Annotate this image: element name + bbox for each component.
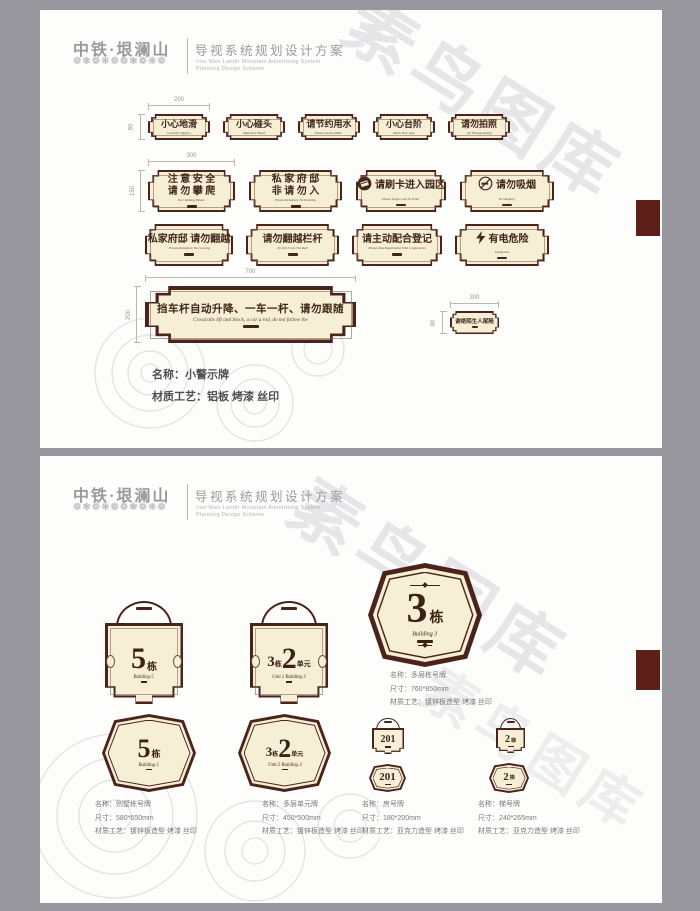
villa-building-sign-hex: 5栋 Building 5 xyxy=(102,714,196,792)
sign-content: 挡车杆自动升降、一车一杆、请勿跟随 Crossrails lift and bl… xyxy=(148,289,353,340)
sign-subtext: No Smoking xyxy=(499,198,515,201)
warning-sign: 请勿吸烟No Smoking xyxy=(460,170,554,212)
spec-craft: 材质工艺：镀锌板造型 烤漆 丝印 xyxy=(262,825,364,839)
sign-script: Building 5 xyxy=(139,762,159,767)
stair-number: 2 xyxy=(505,734,510,745)
sign-subtext: Carefully Slippery xyxy=(167,132,191,135)
sign-text: 有电危险 xyxy=(489,234,529,245)
sign-subtext: Mind Your Head xyxy=(243,132,265,135)
spec-craft: 材质工艺：镀锌板造型 烤漆 丝印 xyxy=(95,825,197,839)
number: 3 xyxy=(407,588,428,630)
warning-sign: 小心地滑Carefully Slippery xyxy=(148,114,210,140)
stair-number-sign-arch: 2梯 xyxy=(496,718,525,753)
spec-name: 名称：梯号牌 xyxy=(478,798,580,812)
sign-ornament xyxy=(243,325,259,328)
spec-size: 尺寸：450*500mm xyxy=(262,812,364,826)
spec-name: 名称：别墅栋号牌 xyxy=(95,798,197,812)
page-building-signs: 素鸟图库 素鸟图库 中铁·垠澜山 ❁❃❁❋❁❁❃❁❋❁ 导视系统规划设计方案 I… xyxy=(40,456,662,903)
stair-suffix: 梯 xyxy=(511,737,516,744)
number-suffix: 单元 xyxy=(297,659,311,669)
sign-text: 小心台阶 xyxy=(386,117,422,130)
sign-content: 注 意 安 全请 勿 攀 爬No Climbing Please xyxy=(151,173,232,209)
sign-subtext: Private Residence No Entering xyxy=(275,199,316,202)
sign-ornament xyxy=(392,253,402,256)
stair-number: 2 xyxy=(503,771,509,783)
card-icon xyxy=(357,176,372,196)
sign-content: 小心地滑Carefully Slippery xyxy=(151,117,207,137)
sign-text: 请刷卡进入园区 xyxy=(375,180,445,191)
warning-sign: 小心碰头Mind Your Head xyxy=(223,114,285,140)
spec-size: 尺寸：580*650mm xyxy=(95,812,197,826)
sign-content: 谢绝陌生人尾随 xyxy=(453,314,496,331)
spec-block-stair: 名称：梯号牌 尺寸：240*265mm 材质工艺：亚克力造型 烤漆 丝印 xyxy=(478,798,580,839)
sign-subtext: Dangerous xyxy=(495,251,510,254)
warning-sign: 私 家 府 邸非 请 勿 入Private Residence No Enter… xyxy=(249,170,342,212)
dimension-height: 200 xyxy=(136,286,137,343)
warning-sign-row-2: 注 意 安 全请 勿 攀 爬No Climbing Please私 家 府 邸非… xyxy=(148,170,554,212)
spec-block-villa: 名称：别墅栋号牌 尺寸：580*650mm 材质工艺：镀锌板造型 烤漆 丝印 xyxy=(95,798,197,839)
sign-script: Unit 2 Building 3 xyxy=(268,762,301,767)
sign-ornament xyxy=(141,681,147,683)
number: 2 xyxy=(278,736,291,762)
warning-sign: 请勿翻越栏杆Do Not Cross The Rail xyxy=(246,224,339,266)
sign-content: 私家府邸 请勿翻越Private Residence No Crossing xyxy=(148,227,230,263)
building-prefix-suffix: 栋 xyxy=(275,659,282,669)
spec-block-unit: 名称：多层单元牌 尺寸：450*500mm 材质工艺：镀锌板造型 烤漆 丝印 xyxy=(262,798,364,839)
sign-text-line: 注 意 安 全 xyxy=(168,174,216,185)
warning-sign-row-1: 小心地滑Carefully Slippery小心碰头Mind Your Head… xyxy=(148,114,510,140)
sign-content: 请刷卡进入园区Please Swipe Card To Enter xyxy=(359,173,443,209)
sign-text: 私 家 府 邸 xyxy=(272,174,320,185)
sign-text-line: 小心碰头 xyxy=(236,117,272,130)
document-subtitle-en: Iron Weir Landir Mountain Advertising Sy… xyxy=(196,505,321,519)
sign-ornament xyxy=(286,681,292,683)
dimension-height: 80 xyxy=(140,114,141,140)
crown-ornament xyxy=(281,607,297,610)
spec-craft: 材质工艺：铝板 烤漆 丝印 xyxy=(152,386,279,408)
sign-ornament xyxy=(396,204,406,207)
sign-subtext: Private Residence No Crossing xyxy=(168,247,209,250)
sign-body: 5栋 Building 5 xyxy=(105,623,183,704)
scanned-design-document: { "watermark_text": "素鸟图库", "header": { … xyxy=(0,0,700,911)
flourish-icon xyxy=(410,585,440,586)
document-title: 导视系统规划设计方案 xyxy=(195,40,345,59)
room-number: 201 xyxy=(381,734,396,745)
warning-sign: 有电危险Dangerous xyxy=(455,224,549,266)
building-sign-multi-storey: 3 栋 Building 3 xyxy=(368,563,482,667)
stair-suffix: 梯 xyxy=(510,774,515,781)
spec-block-small-warning: 名称：小警示牌 材质工艺：铝板 烤漆 丝印 xyxy=(152,364,279,408)
sign-subtext: Crossrails lift and block, a car a rod, … xyxy=(193,318,308,323)
sign-script: Building 3 xyxy=(413,630,438,637)
sign-content: 3 栋 2 单元 Unit 2 Building 3 xyxy=(238,714,331,792)
sign-text-line: 请 勿 攀 爬 xyxy=(168,186,216,197)
sign-text-line: 请勿拍照 xyxy=(461,117,497,130)
sign-ornament xyxy=(472,326,478,328)
no-tailgating-sign: 谢绝陌生人尾随 xyxy=(450,311,499,334)
document-subtitle-line2: Planning Design Scheme xyxy=(196,66,321,73)
sign-content: 请勿拍照No Photographing xyxy=(451,117,507,137)
sign-text: 非 请 勿 入 xyxy=(272,186,320,197)
document-subtitle-en: Iron Weir Landir Mountain Advertising Sy… xyxy=(196,59,321,73)
dimension-width: 700 xyxy=(145,277,356,278)
dimension-width: 200 xyxy=(148,105,210,106)
sign-ornament xyxy=(291,205,301,208)
room-number-sign-hex: 201 xyxy=(369,764,406,792)
sign-text: 请 勿 攀 爬 xyxy=(168,186,216,197)
sign-text-line: 有电危险 xyxy=(476,231,529,249)
warning-sign: 小心台阶Watch Your Step xyxy=(373,114,435,140)
sign-text-line: 小心台阶 xyxy=(386,117,422,130)
dimension-height: 80 xyxy=(442,311,443,334)
sign-subtext: No Climbing Please xyxy=(178,199,205,202)
villa-building-sign-arch: 5栋 Building 5 xyxy=(105,601,183,704)
building-number: 3 栋 xyxy=(407,588,444,630)
spec-name: 名称：小警示牌 xyxy=(152,364,279,386)
header-divider xyxy=(187,38,188,74)
sign-subtext: Do Not Cross The Rail xyxy=(277,247,307,250)
sign-content: 请节约用水Please Saving Water xyxy=(301,117,357,137)
spec-size: 尺寸：760*850mm xyxy=(390,683,492,697)
sign-script: Unit 2 Building 3 xyxy=(272,675,305,680)
dimension-width: 300 xyxy=(148,161,235,162)
sign-subtext: Please Saving Water xyxy=(315,132,342,135)
number: 2 xyxy=(282,644,297,674)
sign-content: 请主动配合登记Please Take Registration With Coo… xyxy=(355,227,439,263)
bolt-icon xyxy=(476,231,486,249)
logo-scroll-ornament-icon: ❁❃❁❋❁❁❃❁❋❁ xyxy=(73,502,167,513)
warning-sign: 请勿拍照No Photographing xyxy=(448,114,510,140)
sign-content: 5栋 Building 5 xyxy=(105,623,183,704)
sign-text-line: 非 请 勿 入 xyxy=(272,186,320,197)
logo-scroll-ornament-icon: ❁❃❁❋❁❁❃❁❋❁ xyxy=(73,56,167,67)
sign-content: 小心台阶Watch Your Step xyxy=(376,117,432,137)
sign-ornament xyxy=(187,205,197,208)
sign-ornament xyxy=(282,769,288,771)
flourish-icon xyxy=(418,645,432,646)
sign-text-line: 请刷卡进入园区 xyxy=(357,176,445,196)
sign-ornament xyxy=(288,253,298,256)
sign-content: 私 家 府 邸非 请 勿 入Private Residence No Enter… xyxy=(252,173,339,209)
room-number-sign-arch: 201 xyxy=(372,718,404,754)
sign-text: 请主动配合登记 xyxy=(362,234,432,245)
page-warning-signs: 素鸟图库 中铁·垠澜山 ❁❃❁❋❁❁❃❁❋❁ 导视系统规划设计方案 Iron W… xyxy=(40,10,662,448)
header-divider xyxy=(187,484,188,520)
spec-size: 尺寸：180*200mm xyxy=(362,812,464,826)
spec-name: 名称：多层单元牌 xyxy=(262,798,364,812)
warning-sign: 私家府邸 请勿翻越Private Residence No Crossing xyxy=(145,224,233,266)
sign-text: 小心碰头 xyxy=(236,117,272,130)
number-suffix: 单元 xyxy=(291,749,303,758)
sign-content: 小心碰头Mind Your Head xyxy=(226,117,282,137)
sign-text-line: 私家府邸 请勿翻越 xyxy=(148,234,231,245)
sign-text: 小心地滑 xyxy=(161,117,197,130)
sign-subtext: Watch Your Step xyxy=(393,132,415,135)
document-subtitle-line1: Iron Weir Landir Mountain Advertising Sy… xyxy=(196,59,321,66)
sign-text-line: 请勿吸烟 xyxy=(478,176,536,196)
sign-text-line: 小心地滑 xyxy=(161,117,197,130)
barrier-gate-sign: 挡车杆自动升降、一车一杆、请勿跟随 Crossrails lift and bl… xyxy=(145,286,356,343)
sign-text: 请勿翻越栏杆 xyxy=(263,234,323,245)
dimension-width: 300 xyxy=(450,303,499,304)
sign-text: 请勿吸烟 xyxy=(496,180,536,191)
page-edge-tab xyxy=(636,650,660,690)
spec-name: 名称：房号牌 xyxy=(362,798,464,812)
number-suffix: 栋 xyxy=(151,747,160,760)
warning-sign: 请刷卡进入园区Please Swipe Card To Enter xyxy=(356,170,446,212)
sign-text: 私家府邸 请勿翻越 xyxy=(148,234,231,245)
stair-number-sign-hex: 2梯 xyxy=(489,763,529,793)
sign-content: 请勿吸烟No Smoking xyxy=(463,173,551,209)
number-suffix: 栋 xyxy=(147,658,157,673)
sign-body: 3 栋 2 单元 Unit 2 Building 3 xyxy=(250,623,328,704)
room-number: 201 xyxy=(379,771,396,783)
building-prefix: 3 xyxy=(267,654,275,671)
warning-sign: 请节约用水Please Saving Water xyxy=(298,114,360,140)
sign-content: 3 栋 Building 3 xyxy=(368,563,482,667)
sign-content: 3 栋 2 单元 Unit 2 Building 3 xyxy=(250,623,328,704)
warning-sign-row-3: 私家府邸 请勿翻越Private Residence No Crossing请勿… xyxy=(145,224,549,266)
sign-content: 有电危险Dangerous xyxy=(458,227,546,263)
sign-ornament xyxy=(146,769,152,771)
unit-sign-arch: 3 栋 2 单元 Unit 2 Building 3 xyxy=(250,601,328,704)
sign-script: Building 5 xyxy=(134,675,154,680)
unit-sign-hex: 3 栋 2 单元 Unit 2 Building 3 xyxy=(238,714,331,792)
spec-craft: 材质工艺：亚克力造型 烤漆 丝印 xyxy=(362,825,464,839)
document-subtitle-line1: Iron Weir Landir Mountain Advertising Sy… xyxy=(196,505,321,512)
sign-text: 请节约用水 xyxy=(306,117,351,130)
sign-subtext: Please Take Registration With Cooperatio… xyxy=(368,247,425,250)
spec-name: 名称：多层栋号牌 xyxy=(390,669,492,683)
sign-ornament xyxy=(502,204,512,207)
spec-craft: 材质工艺：亚克力造型 烤漆 丝印 xyxy=(478,825,580,839)
sign-ornament xyxy=(497,257,507,260)
sign-content: 5栋 Building 5 xyxy=(102,714,196,792)
sign-text-line: 请节约用水 xyxy=(306,117,351,130)
document-subtitle-line2: Planning Design Scheme xyxy=(196,512,321,519)
spec-block-multi-storey: 名称：多层栋号牌 尺寸：760*850mm 材质工艺：镀锌板造型 烤漆 丝印 xyxy=(390,669,492,710)
sign-subtext: Please Swipe Card To Enter xyxy=(382,198,419,201)
sign-text: 请勿拍照 xyxy=(461,117,497,130)
sign-text: 注 意 安 全 xyxy=(168,174,216,185)
dimension-height: 150 xyxy=(140,170,141,212)
number-suffix: 栋 xyxy=(430,607,444,627)
page-edge-tab xyxy=(636,200,660,236)
sign-text-line: 请勿翻越栏杆 xyxy=(263,234,323,245)
warning-sign: 请主动配合登记Please Take Registration With Coo… xyxy=(352,224,442,266)
spec-block-room: 名称：房号牌 尺寸：180*200mm 材质工艺：亚克力造型 烤漆 丝印 xyxy=(362,798,464,839)
number: 5 xyxy=(131,644,146,674)
sign-text-line: 请主动配合登记 xyxy=(362,234,432,245)
nosmoke-icon xyxy=(478,176,493,196)
sign-ornament xyxy=(184,253,194,256)
spec-size: 尺寸：240*265mm xyxy=(478,812,580,826)
document-title: 导视系统规划设计方案 xyxy=(195,486,345,505)
spec-craft: 材质工艺：镀锌板造型 烤漆 丝印 xyxy=(390,696,492,710)
warning-sign: 注 意 安 全请 勿 攀 爬No Climbing Please xyxy=(148,170,235,212)
sign-subtext: No Photographing xyxy=(467,132,492,135)
sign-content: 请勿翻越栏杆Do Not Cross The Rail xyxy=(249,227,336,263)
sign-text-line: 私 家 府 邸 xyxy=(272,174,320,185)
number: 5 xyxy=(137,736,150,762)
crown-ornament xyxy=(136,607,152,610)
sign-text: 谢绝陌生人尾随 xyxy=(455,317,494,325)
sign-text: 挡车杆自动升降、一车一杆、请勿跟随 xyxy=(157,301,344,316)
